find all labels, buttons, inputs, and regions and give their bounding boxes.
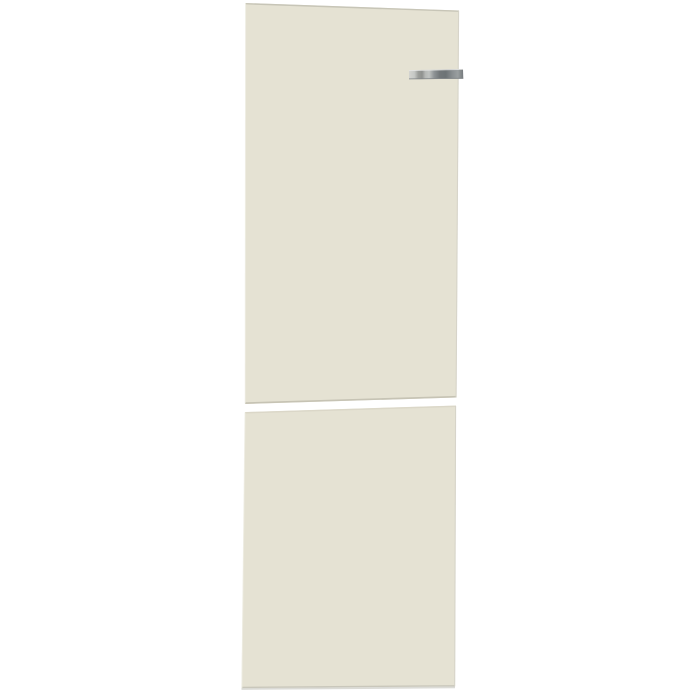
chrome-brand-strip [409,69,463,79]
refrigerator-door-panel-photo [0,0,700,700]
brand-strip-bottom-shadow [409,78,463,79]
product-photo-stage [0,0,700,700]
upper-door-panel [245,3,459,404]
lower-door-panel [242,406,457,689]
